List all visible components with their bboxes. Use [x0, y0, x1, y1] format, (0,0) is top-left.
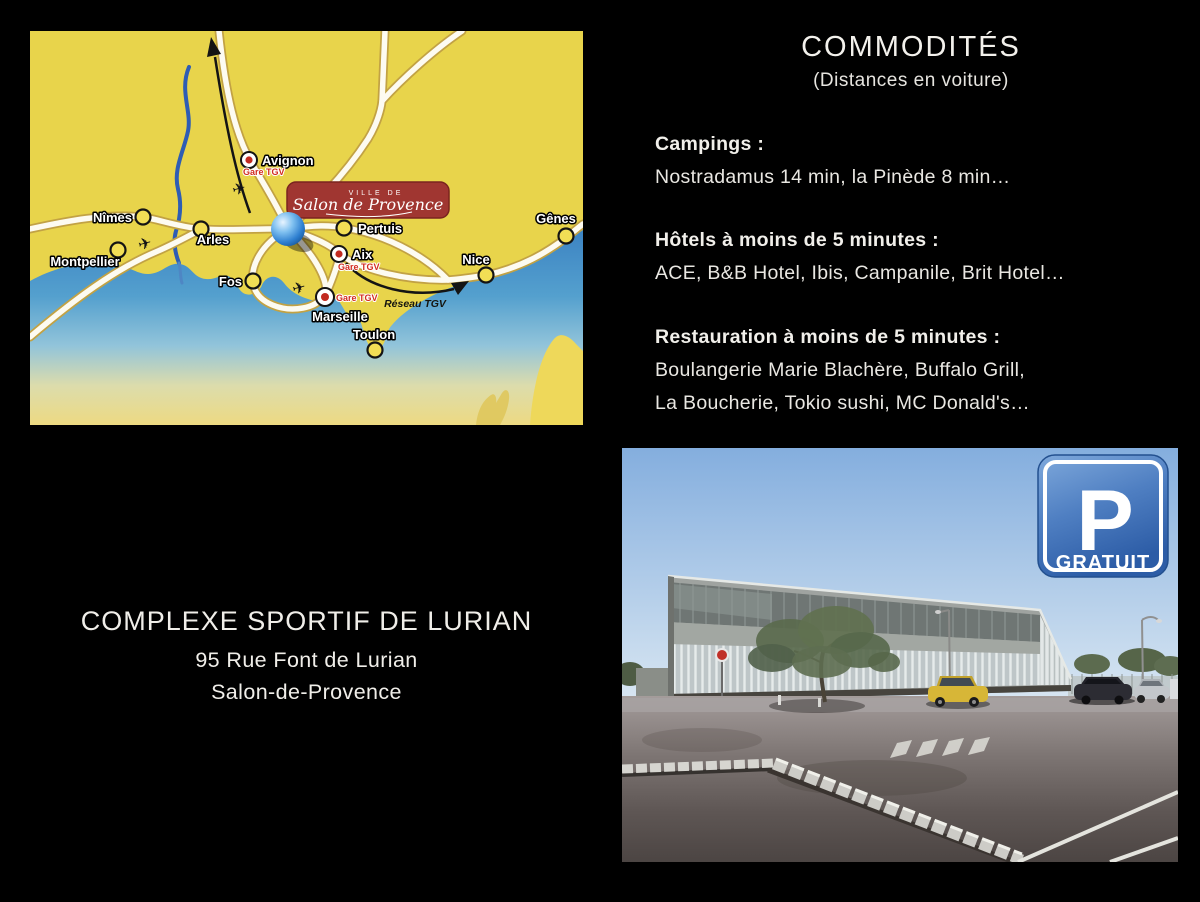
region-map: Réseau TGV ✈ ✈ ✈ VILLE DE Salon de Prove…: [30, 31, 583, 425]
salon-badge: VILLE DE Salon de Provence: [287, 182, 449, 218]
bollard: [778, 695, 781, 705]
venue-photo: P GRATUIT: [622, 448, 1178, 862]
map-label-marseille: Marseille: [312, 309, 368, 324]
white-car-partial: [1170, 679, 1178, 699]
city-marker-nimes: [136, 210, 151, 225]
city-marker-fos: [246, 274, 261, 289]
salon-sphere-marker: [271, 212, 305, 246]
section-header: Hôtels à moins de 5 minutes :: [655, 224, 1190, 257]
section-campings: Campings : Nostradamus 14 min, la Pinède…: [655, 128, 1190, 194]
badge-script-name: Salon de Provence: [293, 195, 444, 214]
map-label-montpellier: Montpellier: [50, 254, 119, 269]
commodities-title: COMMODITÉS: [622, 31, 1200, 64]
map-label-toulon: Toulon: [353, 327, 395, 342]
section-line: Boulangerie Marie Blachère, Buffalo Gril…: [655, 354, 1190, 387]
map-label-pertuis: Pertuis: [358, 221, 402, 236]
section-restauration: Restauration à moins de 5 minutes : Boul…: [655, 321, 1190, 420]
gare-tgv-label-avignon: Gare TGV: [243, 167, 285, 177]
parking-sign: P GRATUIT: [1038, 455, 1168, 577]
city-marker-genes: [559, 229, 574, 244]
section-line: ACE, B&B Hotel, Ibis, Campanile, Brit Ho…: [655, 257, 1190, 290]
commodities-block: COMMODITÉS (Distances en voiture) Campin…: [622, 0, 1200, 440]
map-label-aix: Aix: [352, 247, 373, 262]
venue-address-line2: Salon-de-Provence: [30, 680, 583, 705]
map-label-nimes: Nîmes: [93, 210, 132, 225]
presentation-slide: Réseau TGV ✈ ✈ ✈ VILLE DE Salon de Prove…: [0, 0, 1200, 902]
photo-svg: P GRATUIT: [622, 448, 1178, 862]
section-header: Restauration à moins de 5 minutes :: [655, 321, 1190, 354]
dirt-patch: [642, 728, 762, 752]
section-line: La Boucherie, Tokio sushi, MC Donald's…: [655, 387, 1190, 420]
section-hotels: Hôtels à moins de 5 minutes : ACE, B&B H…: [655, 224, 1190, 290]
commodities-subtitle: (Distances en voiture): [622, 70, 1200, 92]
section-header: Campings :: [655, 128, 1190, 161]
parking-gratuit-label: GRATUIT: [1056, 552, 1150, 574]
city-marker-pertuis: [337, 221, 352, 236]
city-marker-nice: [479, 268, 494, 283]
map-label-fos: Fos: [219, 274, 242, 289]
map-svg: Réseau TGV ✈ ✈ ✈ VILLE DE Salon de Prove…: [30, 31, 583, 425]
map-label-arles: Arles: [197, 232, 230, 247]
section-line: Nostradamus 14 min, la Pinède 8 min…: [655, 161, 1190, 194]
gare-tgv-label-aix: Gare TGV: [338, 262, 380, 272]
reseau-tgv-label: Réseau TGV: [384, 298, 447, 310]
bollard: [818, 698, 821, 707]
venue-name: COMPLEXE SPORTIF DE LURIAN: [30, 606, 583, 637]
gare-tgv-label-marseille: Gare TGV: [336, 293, 378, 303]
annex-building: [636, 668, 668, 698]
map-label-avignon: Avignon: [262, 153, 314, 168]
city-marker-toulon: [368, 343, 383, 358]
map-label-nice: Nice: [462, 252, 489, 267]
venue-address-line1: 95 Rue Font de Lurian: [30, 648, 583, 673]
map-label-genes: Gênes: [536, 211, 576, 226]
